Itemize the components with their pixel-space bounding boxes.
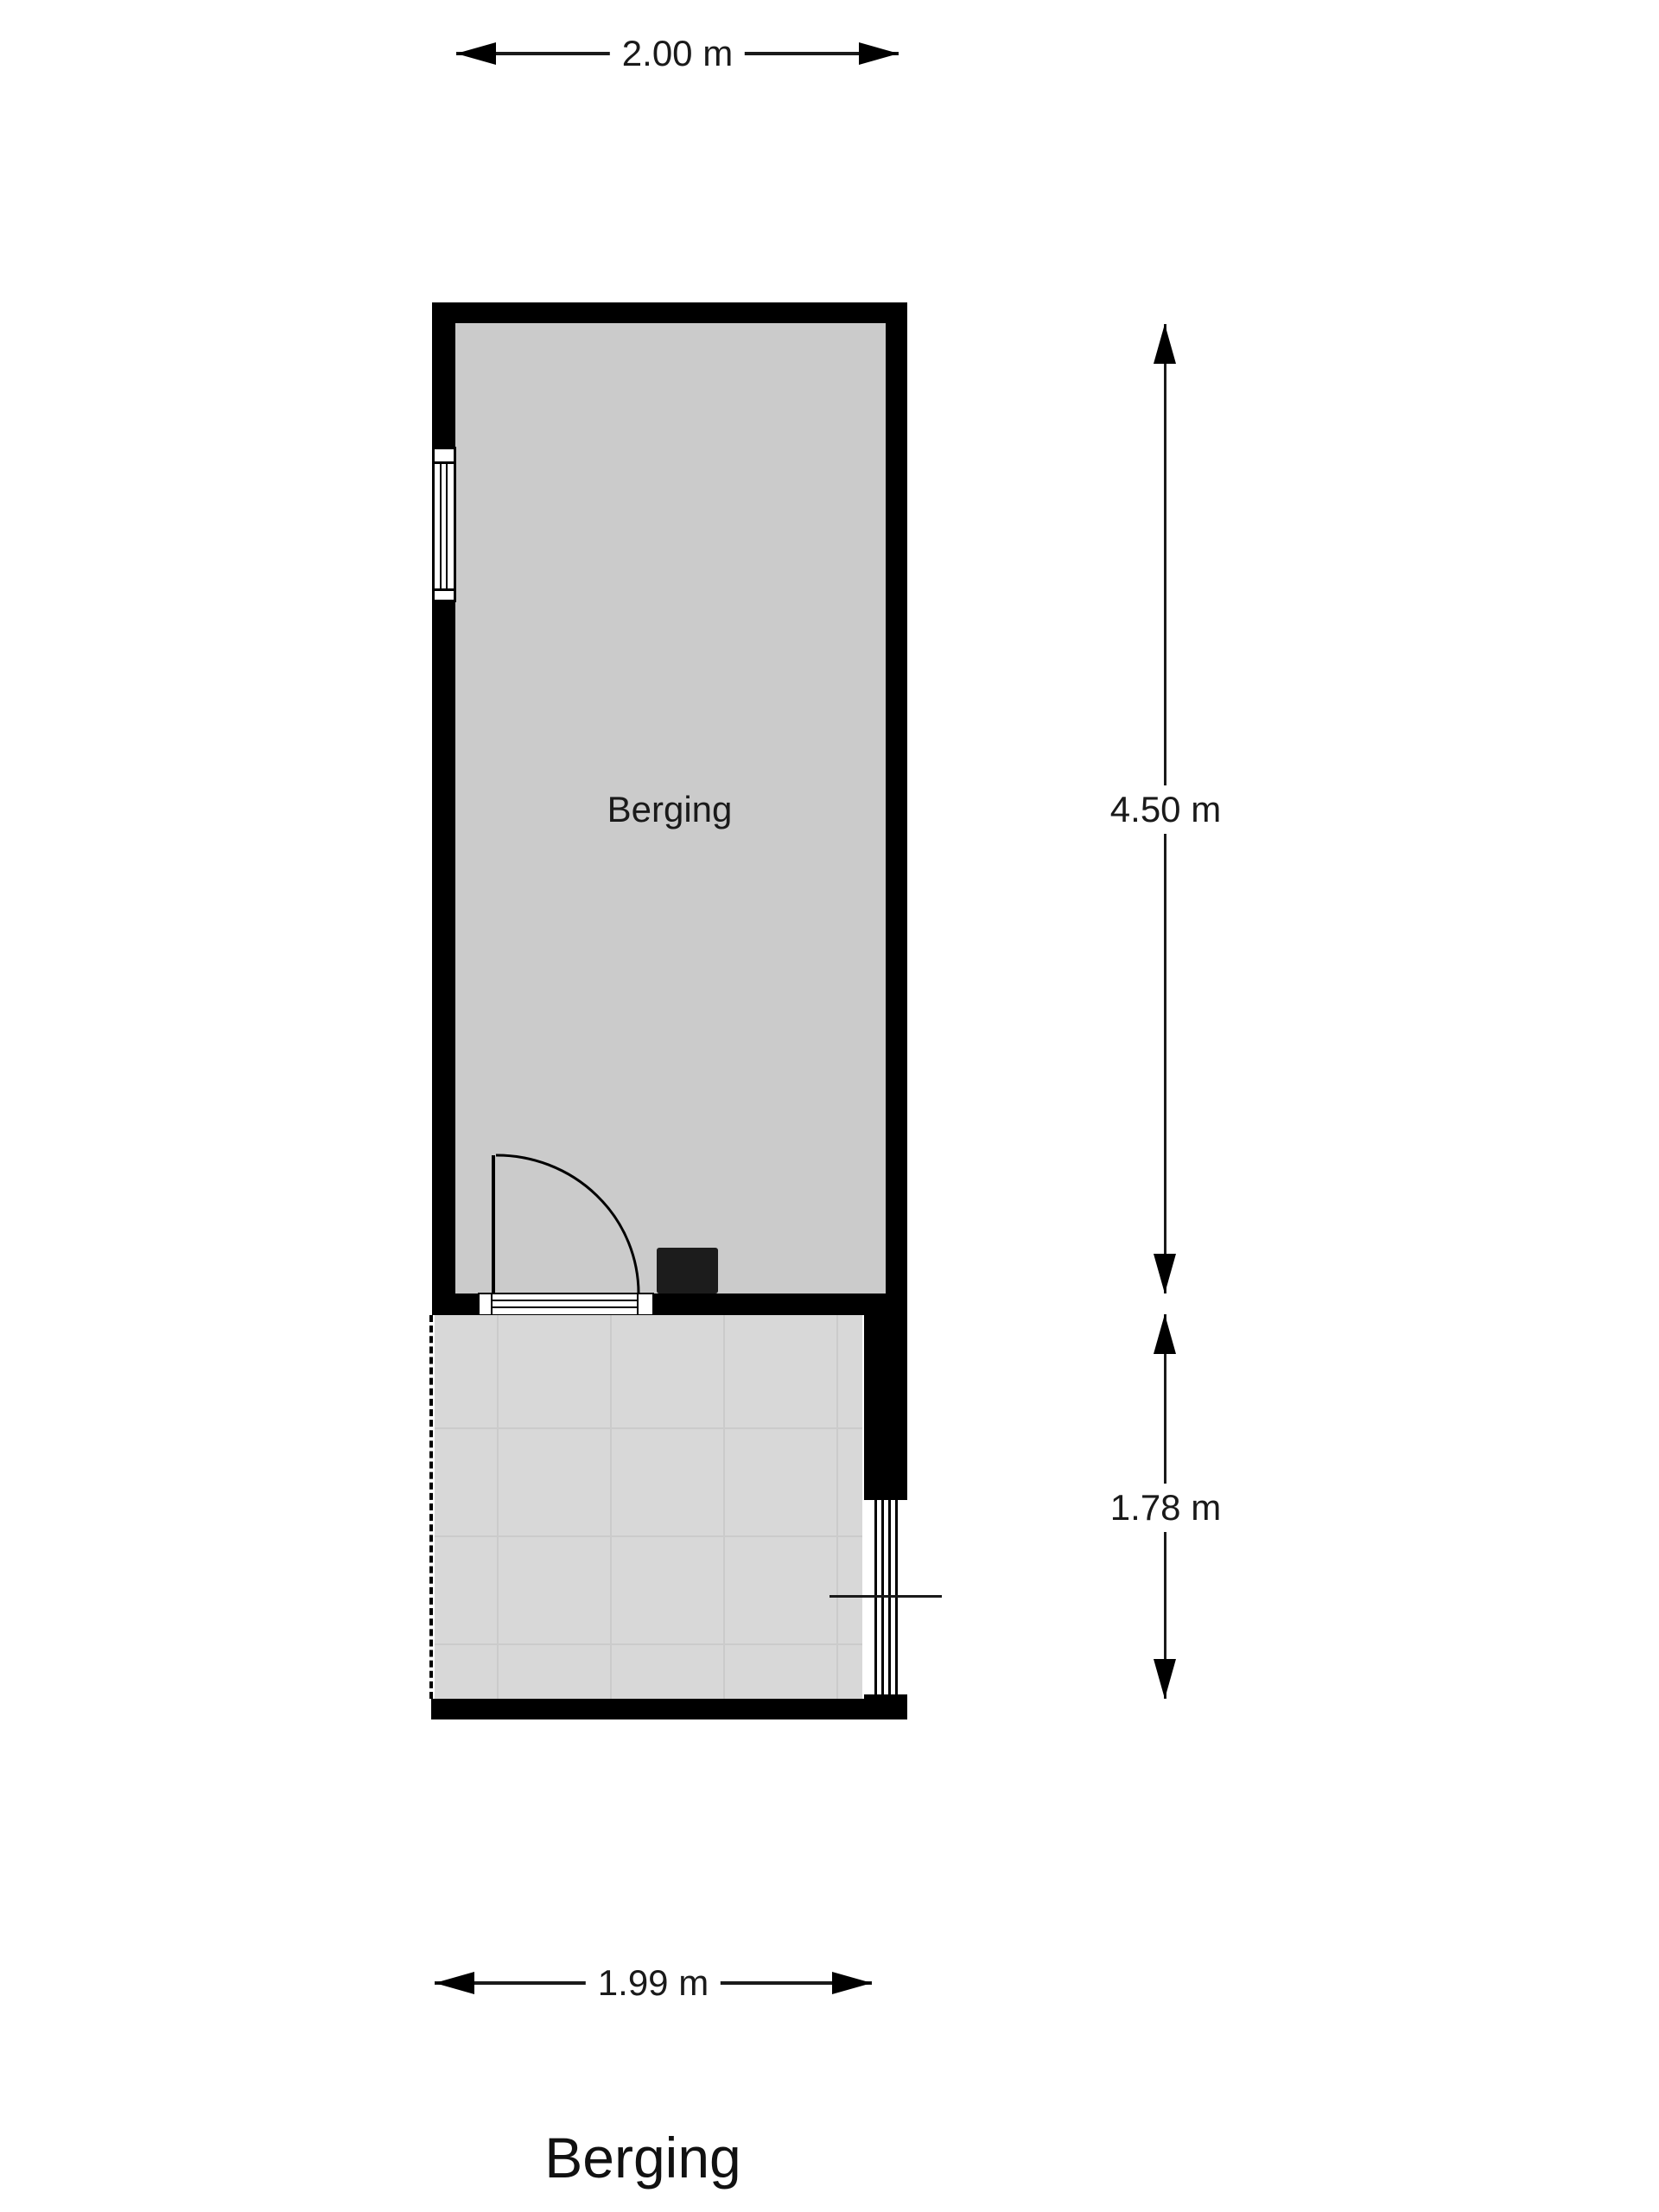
terrace-tile-line: [610, 1315, 612, 1699]
door-threshold: [493, 1293, 637, 1316]
dim-top-arrow-left-icon: [456, 42, 496, 65]
dim-right-lower: 1.78 m: [1147, 1314, 1185, 1699]
left-window-glass-line: [440, 464, 442, 588]
dim-top-arrow-right-icon: [859, 42, 899, 65]
dim-right-lower-arrow-down-icon: [1154, 1659, 1176, 1699]
terrace-tile-line: [435, 1427, 862, 1429]
room-label: Berging: [607, 789, 733, 830]
window-marker-line: [829, 1595, 942, 1598]
lower-window-glass-line: [888, 1500, 891, 1696]
terrace-floor: [435, 1315, 862, 1699]
fixed-unit: [657, 1248, 718, 1294]
lower-window-glass-line: [874, 1500, 877, 1696]
floorplan-canvas: 2.00 m: [0, 0, 1659, 2212]
door-left-jamb: [478, 1293, 493, 1316]
terrace-tile-line: [723, 1315, 725, 1699]
door-right-jamb: [637, 1293, 654, 1316]
door-swing-arc: [494, 1153, 643, 1296]
terrace-dashed-edge: [429, 1315, 433, 1699]
terrace-tile-line: [497, 1315, 499, 1699]
left-window-glazing: [434, 461, 454, 591]
door-threshold-line: [493, 1300, 637, 1301]
lower-window-glass-line: [895, 1500, 898, 1696]
dim-right-upper: 4.50 m: [1147, 324, 1185, 1294]
dim-top: 2.00 m: [456, 35, 899, 73]
dim-bottom-label: 1.99 m: [586, 1959, 721, 2007]
dim-right-lower-arrow-up-icon: [1154, 1314, 1176, 1354]
dim-right-lower-label: 1.78 m: [1098, 1484, 1233, 1532]
dim-bottom-arrow-left-icon: [435, 1972, 474, 1994]
left-window: [432, 447, 456, 602]
left-window-glass-line: [446, 464, 448, 588]
dim-right-upper-label: 4.50 m: [1098, 785, 1233, 834]
dim-bottom: 1.99 m: [435, 1964, 872, 2002]
terrace-bottom-wall: [431, 1699, 907, 1719]
floorplan-title: Berging: [544, 2125, 741, 2190]
dim-top-label: 2.00 m: [610, 29, 745, 78]
terrace-tile-line: [836, 1315, 838, 1699]
terrace-tile-line: [435, 1643, 862, 1645]
door-threshold-line: [493, 1306, 637, 1308]
lower-window-glass-line: [881, 1500, 884, 1696]
dim-right-upper-arrow-down-icon: [1154, 1254, 1176, 1294]
dim-right-upper-arrow-up-icon: [1154, 324, 1176, 364]
dim-bottom-arrow-right-icon: [832, 1972, 872, 1994]
lower-wall-column: [864, 1315, 907, 1500]
lower-window-glazing: [874, 1500, 898, 1696]
terrace-tile-line: [435, 1535, 862, 1537]
